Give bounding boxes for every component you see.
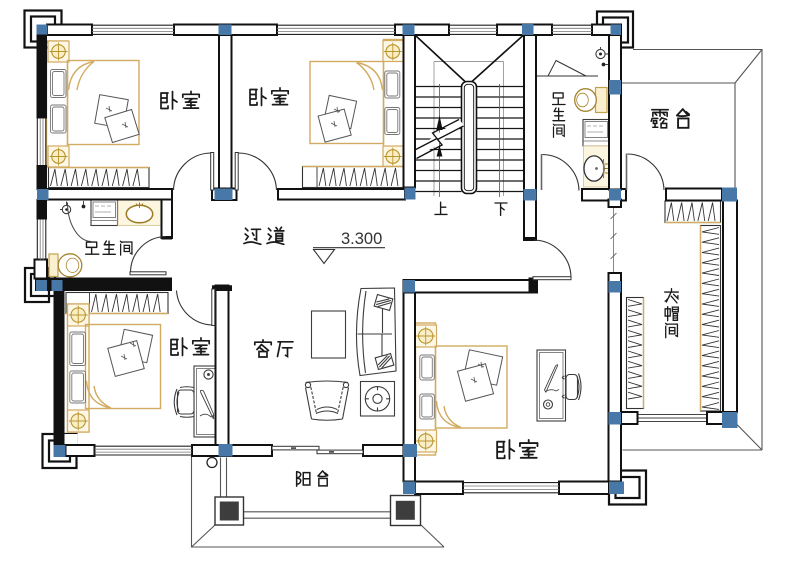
svg-text:3.300: 3.300 xyxy=(341,230,382,248)
